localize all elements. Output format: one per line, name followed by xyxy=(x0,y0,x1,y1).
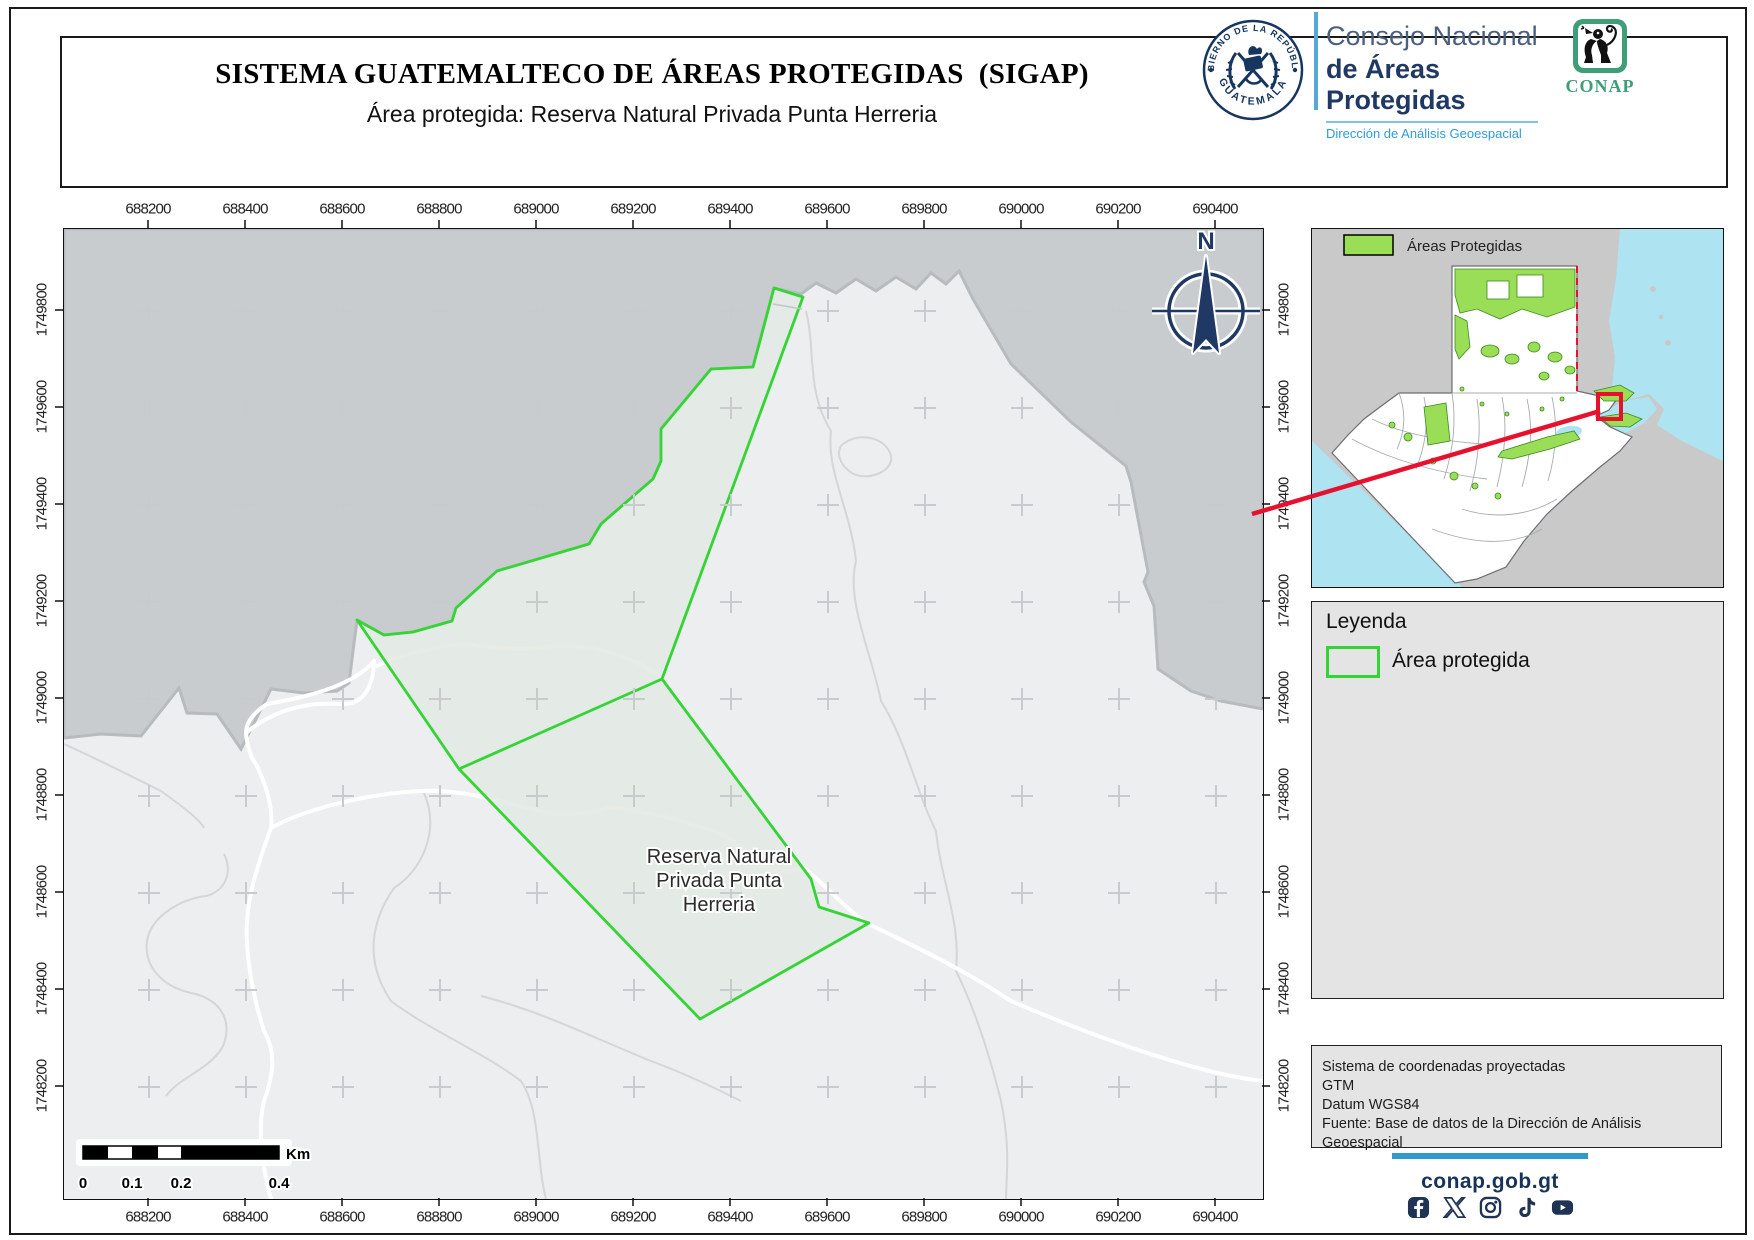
axis-tick-label: 688600 xyxy=(319,201,364,218)
seal-icon: GOBIERNO DE LA REPÚBLICA GUATEMALA xyxy=(1202,19,1304,121)
axis-tick-label: 688800 xyxy=(416,1209,461,1226)
axis-tick-label: 1749600 xyxy=(1276,381,1293,434)
main-map-canvas: Reserva Natural Privada Punta Herreria N xyxy=(64,229,1263,1199)
inset-legend-swatch xyxy=(1344,235,1393,255)
axis-tick-label: 690000 xyxy=(998,1209,1043,1226)
svg-text:Privada Punta: Privada Punta xyxy=(656,870,783,892)
axis-tick-label: 1749800 xyxy=(34,284,51,337)
government-seal-logo: GOBIERNO DE LA REPÚBLICA GUATEMALA xyxy=(1202,19,1304,121)
axis-tick-label: 690400 xyxy=(1192,1209,1237,1226)
svg-text:Reserva Natural: Reserva Natural xyxy=(647,846,792,868)
info-line-4: Fuente: Base de datos de la Dirección de… xyxy=(1322,1115,1711,1153)
svg-text:0.1: 0.1 xyxy=(122,1175,143,1192)
axis-tick-label: 688400 xyxy=(222,1209,267,1226)
svg-text:Herreria: Herreria xyxy=(683,894,756,916)
axis-tick-label: 689400 xyxy=(707,1209,752,1226)
axis-tick-label: 1748200 xyxy=(34,1060,51,1113)
axis-tick-label: 1748600 xyxy=(34,866,51,919)
page-title: SISTEMA GUATEMALTECO DE ÁREAS PROTEGIDAS… xyxy=(162,58,1142,91)
info-line-3: Datum WGS84 xyxy=(1322,1096,1711,1115)
projection-info-panel: Sistema de coordenadas proyectadas GTM D… xyxy=(1311,1045,1722,1148)
tiktok-icon[interactable] xyxy=(1515,1196,1538,1219)
legend-item-label: Área protegida xyxy=(1392,649,1530,673)
instagram-icon[interactable] xyxy=(1479,1196,1502,1219)
axis-tick-label: 1749400 xyxy=(1276,478,1293,531)
axis-tick-label: 689200 xyxy=(610,1209,655,1226)
axis-tick-label: 688200 xyxy=(125,1209,170,1226)
axis-tick-label: 689800 xyxy=(901,201,946,218)
axis-tick-label: 688800 xyxy=(416,201,461,218)
protected-area-swatch xyxy=(1326,646,1380,678)
legend-title: Leyenda xyxy=(1326,610,1407,634)
axis-tick-label: 690000 xyxy=(998,201,1043,218)
axis-tick-label: 1748400 xyxy=(1276,963,1293,1016)
axis-tick-label: 690200 xyxy=(1095,201,1140,218)
page-subtitle: Área protegida: Reserva Natural Privada … xyxy=(162,101,1142,128)
inset-locator-map: Áreas Protegidas xyxy=(1311,228,1724,588)
axis-tick-label: 1749200 xyxy=(1276,575,1293,628)
consejo-rule xyxy=(1326,121,1538,123)
info-line-1: Sistema de coordenadas proyectadas xyxy=(1322,1058,1711,1077)
main-map: Reserva Natural Privada Punta Herreria N xyxy=(63,228,1264,1200)
svg-text:0: 0 xyxy=(79,1175,87,1192)
axis-tick-label: 1749600 xyxy=(34,381,51,434)
axis-tick-label: 1749800 xyxy=(1276,284,1293,337)
axis-tick-label: 689800 xyxy=(901,1209,946,1226)
legend-panel: Leyenda Área protegida xyxy=(1311,601,1724,999)
youtube-icon[interactable] xyxy=(1551,1196,1574,1219)
map-document-page: SISTEMA GUATEMALTECO DE ÁREAS PROTEGIDAS… xyxy=(0,0,1754,1240)
header: SISTEMA GUATEMALTECO DE ÁREAS PROTEGIDAS… xyxy=(60,36,1728,188)
axis-tick-label: 1748600 xyxy=(1276,866,1293,919)
consejo-line1: Consejo Nacional xyxy=(1326,21,1586,52)
axis-tick-label: 1749400 xyxy=(34,478,51,531)
axis-tick-label: 689000 xyxy=(513,1209,558,1226)
axis-tick-label: 1748800 xyxy=(1276,769,1293,822)
axis-tick-label: 690400 xyxy=(1192,201,1237,218)
svg-text:0.4: 0.4 xyxy=(269,1175,291,1192)
axis-tick-label: 1749000 xyxy=(34,672,51,725)
conap-wordmark: Consejo Nacional de Áreas Protegidas Dir… xyxy=(1326,21,1586,141)
compass-n-label: N xyxy=(1197,229,1214,255)
consejo-line2: de Áreas Protegidas xyxy=(1326,54,1586,116)
axis-tick-label: 689400 xyxy=(707,201,752,218)
axis-tick-label: 690200 xyxy=(1095,1209,1140,1226)
axis-tick-label: 688600 xyxy=(319,1209,364,1226)
x-icon[interactable] xyxy=(1443,1196,1466,1219)
footer-accent-bar xyxy=(1392,1153,1588,1159)
axis-tick-label: 1748400 xyxy=(34,963,51,1016)
axis-tick-label: 688200 xyxy=(125,201,170,218)
consejo-line3: Dirección de Análisis Geoespacial xyxy=(1326,126,1586,141)
conap-website-url: conap.gob.gt xyxy=(1290,1170,1690,1194)
conap-label: CONAP xyxy=(1565,76,1635,97)
axis-tick-label: 689600 xyxy=(804,1209,849,1226)
logo-divider xyxy=(1314,12,1318,110)
axis-tick-label: 1749000 xyxy=(1276,672,1293,725)
info-line-2: GTM xyxy=(1322,1077,1711,1096)
facebook-icon[interactable] xyxy=(1407,1196,1430,1219)
axis-tick-label: 1748200 xyxy=(1276,1060,1293,1113)
axis-tick-label: 689600 xyxy=(804,201,849,218)
svg-text:0.2: 0.2 xyxy=(171,1175,192,1192)
axis-tick-label: 688400 xyxy=(222,201,267,218)
inset-legend-label: Áreas Protegidas xyxy=(1407,238,1522,255)
axis-tick-label: 689000 xyxy=(513,201,558,218)
inset-legend: Áreas Protegidas xyxy=(1344,235,1522,255)
axis-tick-label: 689200 xyxy=(610,201,655,218)
inset-map-canvas: Áreas Protegidas xyxy=(1312,229,1723,587)
social-icons-row xyxy=(1290,1196,1690,1219)
conap-logo: CONAP xyxy=(1565,19,1635,97)
axis-tick-label: 1749200 xyxy=(34,575,51,628)
scale-unit-label: Km xyxy=(286,1146,310,1163)
conap-monkey-icon xyxy=(1573,19,1627,73)
axis-tick-label: 1748800 xyxy=(34,769,51,822)
